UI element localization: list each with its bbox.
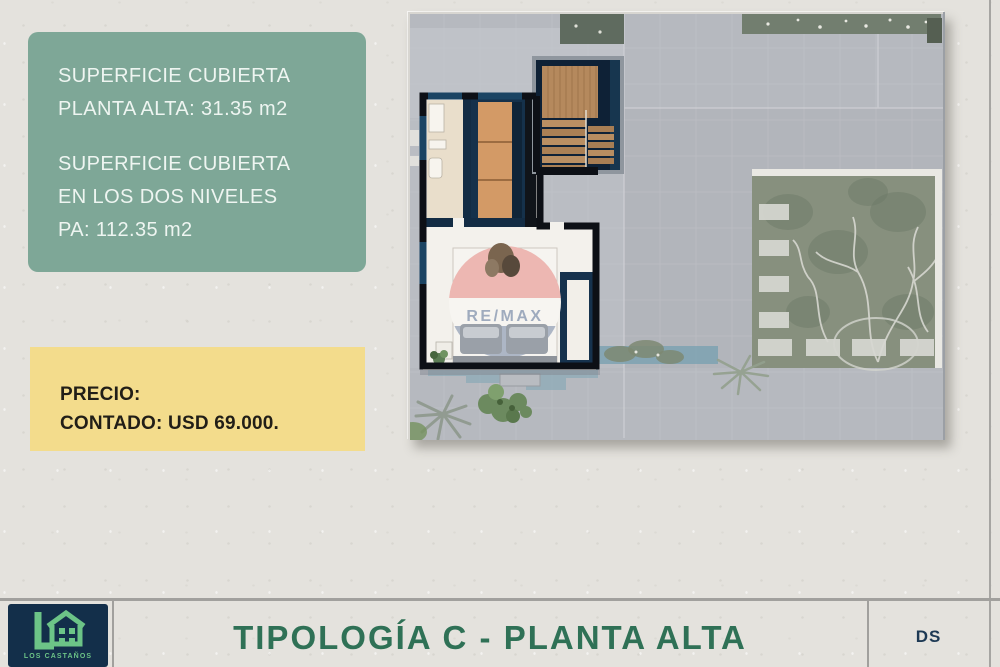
- floor-plan-rendering: RE/MAX: [408, 12, 945, 440]
- surface-info-line: PA: 112.35 m2: [58, 214, 356, 247]
- sheet-border-line: [989, 0, 991, 667]
- company-logo: LOS CASTAÑOS: [8, 604, 108, 667]
- logo-text: LOS CASTAÑOS: [24, 653, 92, 660]
- surface-info-line: SUPERFICIE CUBIERTA: [58, 148, 356, 181]
- initials-badge: DS: [868, 601, 989, 667]
- price-label: PRECIO:: [60, 380, 355, 409]
- bathroom: [427, 100, 464, 222]
- presentation-slide: SUPERFICIE CUBIERTA PLANTA ALTA: 31.35 m…: [0, 0, 1000, 667]
- floor-plan-image: RE/MAX: [408, 12, 945, 440]
- garden-courtyard: [752, 169, 942, 370]
- spacer: [58, 126, 356, 148]
- slide-title: TIPOLOGÍA C - PLANTA ALTA: [113, 601, 867, 667]
- surface-info-line: EN LOS DOS NIVELES: [58, 181, 356, 214]
- stairs: [532, 56, 624, 175]
- entry-steps: [500, 374, 540, 386]
- surface-info-card: SUPERFICIE CUBIERTA PLANTA ALTA: 31.35 m…: [28, 32, 366, 272]
- price-value: CONTADO: USD 69.000.: [60, 409, 355, 438]
- remax-watermark: RE/MAX: [466, 308, 543, 325]
- surface-info-line: SUPERFICIE CUBIERTA: [58, 60, 356, 93]
- wardrobe: [471, 96, 525, 226]
- price-card: PRECIO: CONTADO: USD 69.000.: [30, 347, 365, 451]
- house-logo-icon: [28, 608, 88, 652]
- surface-info-line: PLANTA ALTA: 31.35 m2: [58, 93, 356, 126]
